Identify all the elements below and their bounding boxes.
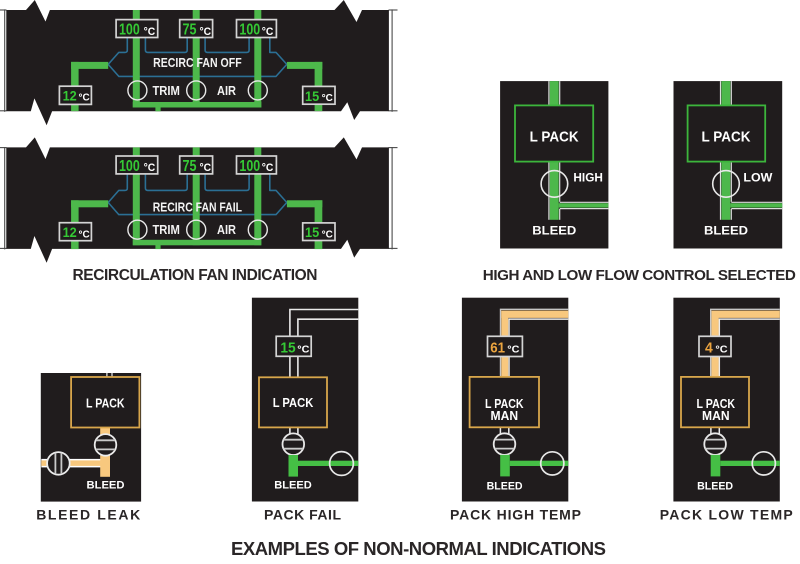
svg-text:12: 12: [63, 89, 77, 104]
svg-text:°C: °C: [322, 228, 334, 240]
svg-text:°C: °C: [322, 92, 334, 104]
svg-text:L PACK: L PACK: [273, 396, 314, 410]
svg-text:BLEED: BLEED: [697, 480, 733, 492]
svg-text:RECIRCULATION FAN INDICATION: RECIRCULATION FAN INDICATION: [73, 267, 318, 284]
svg-text:BLEED LEAK: BLEED LEAK: [36, 506, 140, 522]
svg-text:MAN: MAN: [491, 409, 519, 423]
svg-text:100: 100: [119, 158, 140, 175]
svg-text:L PACK: L PACK: [530, 128, 579, 145]
svg-text:4: 4: [705, 340, 713, 356]
svg-text:PACK HIGH TEMP: PACK HIGH TEMP: [450, 506, 581, 522]
svg-text:°C: °C: [262, 26, 274, 38]
svg-text:61: 61: [490, 340, 505, 356]
svg-text:15: 15: [305, 89, 320, 104]
svg-text:AIR: AIR: [217, 84, 236, 98]
svg-text:°C: °C: [262, 162, 274, 174]
svg-text:HIGH AND LOW FLOW CONTROL SELE: HIGH AND LOW FLOW CONTROL SELECTED: [483, 267, 796, 284]
svg-text:100: 100: [119, 22, 140, 39]
svg-text:15: 15: [305, 225, 320, 240]
svg-text:L PACK: L PACK: [86, 396, 125, 410]
svg-text:TRIM: TRIM: [152, 223, 180, 237]
svg-text:RECIRC FAN FAIL: RECIRC FAN FAIL: [153, 201, 243, 215]
svg-text:AIR: AIR: [217, 223, 236, 237]
svg-text:PACK FAIL: PACK FAIL: [264, 506, 341, 522]
svg-text:100: 100: [239, 22, 260, 39]
svg-text:BLEED: BLEED: [87, 480, 125, 492]
svg-text:°C: °C: [79, 228, 91, 240]
svg-text:MAN: MAN: [702, 409, 730, 423]
svg-text:°C: °C: [200, 162, 212, 174]
svg-text:BLEED: BLEED: [274, 480, 312, 492]
svg-text:100: 100: [239, 158, 260, 175]
svg-text:°C: °C: [297, 344, 310, 356]
svg-text:RECIRC FAN OFF: RECIRC FAN OFF: [153, 56, 242, 70]
svg-text:°C: °C: [715, 344, 728, 356]
svg-text:BLEED: BLEED: [532, 224, 576, 238]
svg-text:HIGH: HIGH: [573, 172, 603, 184]
svg-text:BLEED: BLEED: [487, 480, 523, 492]
svg-text:°C: °C: [79, 92, 91, 104]
svg-text:LOW: LOW: [743, 172, 772, 184]
svg-text:EXAMPLES OF NON-NORMAL INDICAT: EXAMPLES OF NON-NORMAL INDICATIONS: [231, 538, 606, 559]
svg-text:75: 75: [183, 22, 197, 39]
svg-text:°C: °C: [144, 26, 156, 38]
svg-text:15: 15: [280, 340, 295, 356]
svg-text:PACK LOW TEMP: PACK LOW TEMP: [660, 506, 793, 522]
svg-text:°C: °C: [507, 344, 520, 356]
svg-text:L PACK: L PACK: [702, 128, 751, 145]
svg-text:°C: °C: [144, 162, 156, 174]
svg-text:TRIM: TRIM: [152, 84, 180, 98]
svg-text:BLEED: BLEED: [704, 224, 748, 238]
svg-text:°C: °C: [200, 26, 212, 38]
svg-text:12: 12: [63, 225, 77, 240]
svg-text:75: 75: [183, 158, 197, 175]
